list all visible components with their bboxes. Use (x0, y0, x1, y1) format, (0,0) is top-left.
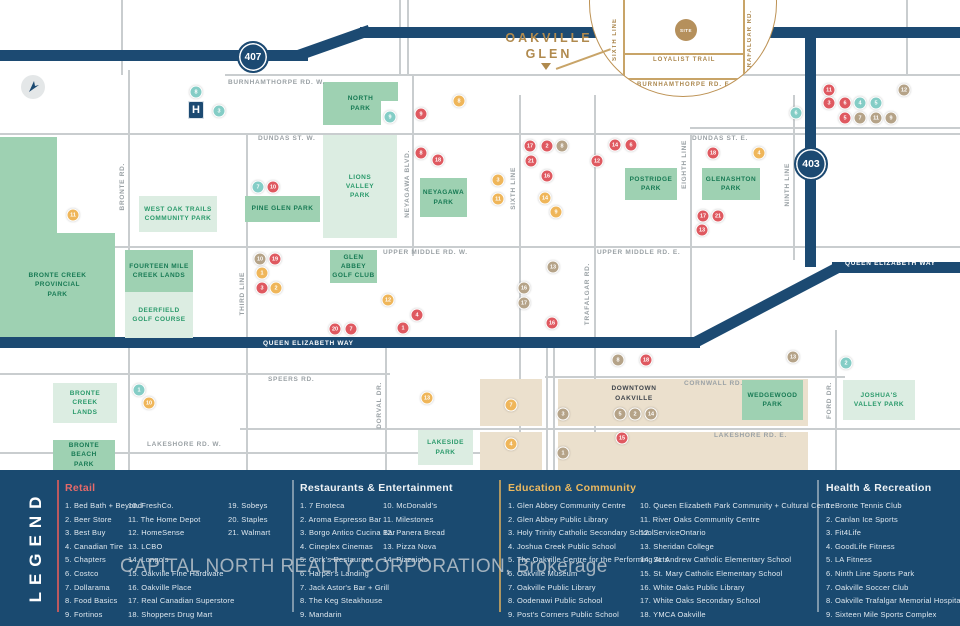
poi-marker-t-8: 8 (556, 140, 569, 153)
map-canvas: BRONTE CREEK PROVINCIAL PARKWEST OAK TRA… (0, 0, 960, 470)
brokerage-watermark: CAPITAL NORTH REALTY CORPORATION, Broker… (120, 556, 608, 578)
legend-item-retail: 11. The Home Depot (128, 515, 201, 524)
poi-marker-r-12: 12 (591, 155, 604, 168)
poi-marker-r-16: 16 (541, 170, 554, 183)
poi-marker-r-17: 17 (697, 210, 710, 223)
legend-item-education: 8. Oodenawi Public School (508, 596, 603, 605)
road-vertical (246, 133, 248, 470)
park-west-oak-trails: WEST OAK TRAILS COMMUNITY PARK (139, 196, 217, 232)
callout-trafalgar-label: TRAFALGAR RD. (747, 10, 753, 72)
poi-marker-t-11: 11 (870, 112, 883, 125)
legend-divider (57, 480, 59, 612)
north-arrow-icon (21, 75, 45, 99)
park-glenashton: GLENASHTON PARK (702, 168, 760, 200)
poi-marker-o-2: 2 (270, 282, 283, 295)
site-marker: SITE (675, 19, 697, 41)
poi-marker-r-8: 8 (415, 147, 428, 160)
legend-section-title-restaurants: Restaurants & Entertainment (300, 482, 453, 494)
callout-burnhamthorpe-road (590, 78, 777, 80)
legend-item-health: 2. Canlan Ice Sports (826, 515, 898, 524)
poi-marker-r-20: 20 (329, 323, 342, 336)
park-glen-abbey: GLEN ABBEY GOLF CLUB (330, 250, 377, 283)
park-pine-glen-park: PINE GLEN PARK (245, 196, 320, 222)
road-vertical (793, 95, 795, 260)
poi-marker-t-17: 17 (518, 297, 531, 310)
poi-marker-c-8: 8 (190, 86, 203, 99)
oakville-glen-map-page: BRONTE CREEK PROVINCIAL PARKWEST OAK TRA… (0, 0, 960, 626)
poi-marker-c-9: 9 (384, 111, 397, 124)
legend-item-restaurants: 10. McDonald's (383, 501, 437, 510)
road-label: QUEEN ELIZABETH WAY (263, 340, 354, 347)
road-vertical (546, 340, 548, 470)
legend-item-restaurants: 4. Cineplex Cinemas (300, 542, 373, 551)
highway-407-shield: 407 (237, 41, 269, 73)
park-joshua-s: JOSHUA'S VALLEY PARK (843, 380, 915, 420)
legend-item-retail: 6. Costco (65, 569, 98, 578)
poi-marker-r-10: 10 (267, 181, 280, 194)
project-title: OAKVILLE GLEN (505, 31, 593, 62)
legend-item-restaurants: 12. Panera Bread (383, 528, 445, 537)
road-label: SPEERS RD. (268, 376, 314, 383)
legend-item-education: 14. St. Andrew Catholic Elementary Schoo… (640, 555, 791, 564)
callout-sixth-line-label: SIXTH LINE (612, 18, 618, 61)
road-vertical (690, 133, 692, 337)
legend-item-retail: 20. Staples (228, 515, 268, 524)
legend-item-retail: 16. Oakville Place (128, 583, 192, 592)
park-lakeside: LAKESIDE PARK (418, 430, 473, 465)
legend-item-health: 3. Fit4Life (826, 528, 861, 537)
poi-marker-r-13: 13 (696, 224, 709, 237)
poi-marker-r-15: 15 (616, 432, 629, 445)
legend-section-title-retail: Retail (65, 482, 95, 494)
legend-item-health: 4. GoodLife Fitness (826, 542, 895, 551)
legend-divider (292, 480, 294, 612)
legend-item-education: 3. Holy Trinity Catholic Secondary Schoo… (508, 528, 654, 537)
poi-marker-c-6: 6 (790, 107, 803, 120)
poi-marker-t-9: 9 (885, 112, 898, 125)
road-label: EIGHTH LINE (681, 140, 688, 189)
legend-item-retail: 3. Best Buy (65, 528, 106, 537)
road-label: THIRD LINE (239, 272, 246, 315)
legend-item-retail: 4. Canadian Tire (65, 542, 123, 551)
poi-marker-o-14: 14 (539, 192, 552, 205)
legend-item-education: 9. Post's Corners Public School (508, 610, 619, 619)
legend-section-title-education: Education & Community (508, 482, 636, 494)
road-label: BRONTE RD. (119, 163, 126, 210)
callout-loyalist-trail-road (623, 53, 745, 55)
legend-item-retail: 10. FreshCo. (128, 501, 174, 510)
poi-marker-r-2: 2 (541, 140, 554, 153)
road-vertical (121, 0, 123, 75)
callout-burnhamthorpe-label: BURNHAMTHORPE RD. E. (637, 82, 732, 88)
road-label: UPPER MIDDLE RD. E. (597, 249, 680, 256)
road-vertical (412, 74, 414, 256)
legend-item-education: 7. Oakville Public Library (508, 583, 596, 592)
legend-item-education: 18. YMCA Oakville (640, 610, 706, 619)
legend-item-retail: 12. HomeSense (128, 528, 184, 537)
legend-item-education: 2. Glen Abbey Public Library (508, 515, 608, 524)
poi-marker-o-9: 9 (550, 206, 563, 219)
poi-marker-t-8: 8 (612, 354, 625, 367)
park-bronte-creek: BRONTE CREEK PROVINCIAL PARK (0, 233, 115, 337)
poi-marker-t-14: 14 (645, 408, 658, 421)
park-wedgewood: WEDGEWOOD PARK (742, 380, 803, 420)
legend-divider (817, 480, 819, 612)
legend-item-health: 1. Bronte Tennis Club (826, 501, 902, 510)
legend-title: LEGEND (26, 476, 46, 616)
road-vertical (553, 340, 555, 470)
poi-marker-c-5: 5 (870, 97, 883, 110)
site-label: SITE (680, 28, 692, 33)
poi-marker-o-8: 8 (453, 95, 466, 108)
legend-item-education: 1. Glen Abbey Community Centre (508, 501, 626, 510)
poi-marker-c-4: 4 (854, 97, 867, 110)
poi-marker-r-14: 14 (609, 139, 622, 152)
legend-item-health: 8. Oakville Trafalgar Memorial Hospital (826, 596, 960, 605)
legend-item-retail: 8. Food Basics (65, 596, 117, 605)
poi-marker-r-18: 18 (640, 354, 653, 367)
poi-marker-c-1: 1 (133, 384, 146, 397)
legend-item-education: 4. Joshua Creek Public School (508, 542, 616, 551)
north-arrow-glyph (26, 80, 40, 94)
poi-marker-o-4: 4 (505, 438, 518, 451)
poi-marker-c-2: 2 (840, 357, 853, 370)
poi-marker-o-13: 13 (421, 392, 434, 405)
poi-marker-t-16: 16 (518, 282, 531, 295)
poi-marker-o-1: 1 (256, 267, 269, 280)
poi-marker-c-7: 7 (252, 181, 265, 194)
park-area (0, 137, 57, 233)
poi-marker-t-13: 13 (787, 351, 800, 364)
road-label: NINTH LINE (784, 163, 791, 206)
park-bronte: BRONTE CREEK LANDS (53, 383, 117, 423)
legend-item-health: 7. Oakville Soccer Club (826, 583, 909, 592)
park-neyagawa: NEYAGAWA PARK (420, 178, 467, 217)
road-label: UPPER MIDDLE RD. W. (383, 249, 468, 256)
legend-section-title-health: Health & Recreation (826, 482, 931, 494)
legend-item-restaurants: 8. The Keg Steakhouse (300, 596, 382, 605)
road-label: LAKESHORE RD. E. (714, 432, 787, 439)
legend-item-health: 6. Ninth Line Sports Park (826, 569, 914, 578)
road-horizontal (0, 373, 390, 375)
poi-marker-r-1: 1 (397, 322, 410, 335)
road-label: DUNDAS ST. E. (692, 135, 748, 142)
hospital-icon: H (188, 101, 204, 119)
legend-item-retail: 9. Fortinos (65, 610, 103, 619)
poi-marker-o-4: 4 (753, 147, 766, 160)
road-label: NEYAGAWA BLVD. (404, 150, 411, 218)
poi-marker-r-3: 3 (256, 282, 269, 295)
hospital-letter: H (192, 104, 200, 116)
legend-item-restaurants: 13. Pizza Nova (383, 542, 436, 551)
poi-marker-r-6: 6 (839, 97, 852, 110)
callout-sixth-line-road (623, 0, 625, 78)
road-label: LAKESHORE RD. W. (147, 441, 221, 448)
legend-item-retail: 17. Real Canadian Superstore (128, 596, 235, 605)
road-horizontal (0, 246, 960, 248)
road-label: DORVAL DR. (376, 382, 383, 429)
legend-item-education: 12. ServiceOntario (640, 528, 706, 537)
legend-item-restaurants: 11. Milestones (383, 515, 434, 524)
poi-marker-r-11: 11 (823, 84, 836, 97)
poi-marker-o-10: 10 (143, 397, 156, 410)
downtown-oakville-label: DOWNTOWN OAKVILLE (596, 384, 672, 404)
poi-marker-r-21: 21 (525, 155, 538, 168)
legend-item-retail: 7. Dollarama (65, 583, 110, 592)
road-label: TRAFALGAR RD. (584, 263, 591, 325)
highway-403-shield: 403 (794, 147, 828, 181)
poi-marker-r-3: 3 (823, 97, 836, 110)
title-pointer-icon (541, 63, 551, 70)
legend-item-retail: 5. Chapters (65, 555, 106, 564)
park-fourteen-mile: FOURTEEN MILE CREEK LANDS (125, 250, 193, 292)
legend-item-education: 17. White Oaks Secondary School (640, 596, 760, 605)
legend-item-retail: 2. Beer Store (65, 515, 112, 524)
poi-marker-t-1: 1 (557, 447, 570, 460)
road-horizontal (240, 428, 960, 430)
poi-marker-r-21: 21 (712, 210, 725, 223)
callout-trafalgar-road (743, 0, 745, 78)
highway-qew-segment (692, 262, 841, 347)
legend-item-restaurants: 2. Aroma Espresso Bar (300, 515, 381, 524)
poi-marker-o-11: 11 (492, 193, 505, 206)
poi-marker-r-16: 16 (546, 317, 559, 330)
road-label: QUEEN ELIZABETH WAY (845, 260, 936, 267)
highway-403-number: 403 (802, 158, 820, 170)
poi-marker-o-3: 3 (492, 174, 505, 187)
road-horizontal (690, 127, 960, 129)
highway-407-number: 407 (245, 52, 262, 63)
site-callout-bubble: SITE LOYALIST TRAIL SIXTH LINE TRAFALGAR… (589, 0, 777, 97)
road-horizontal (225, 74, 960, 76)
road-label: SIXTH LINE (510, 167, 517, 210)
road-label: FORD DR. (826, 382, 833, 419)
poi-marker-r-17: 17 (524, 140, 537, 153)
park-lions: LIONS VALLEY PARK (323, 135, 397, 238)
legend-item-retail: 21. Walmart (228, 528, 270, 537)
poi-marker-r-19: 19 (269, 253, 282, 266)
legend-divider (499, 480, 501, 612)
poi-marker-o-12: 12 (382, 294, 395, 307)
poi-marker-r-18: 18 (432, 154, 445, 167)
legend-item-retail: 18. Shoppers Drug Mart (128, 610, 212, 619)
poi-marker-r-6: 6 (625, 139, 638, 152)
park-deerfield: DEERFIELD GOLF COURSE (125, 292, 193, 338)
poi-marker-c-3: 3 (213, 105, 226, 118)
poi-marker-t-10: 10 (254, 253, 267, 266)
legend-item-education: 13. Sheridan College (640, 542, 714, 551)
road-label: BURNHAMTHORPE RD. W. (228, 79, 325, 86)
road-vertical (385, 340, 387, 470)
road-horizontal (545, 376, 845, 378)
legend-item-retail: 19. Sobeys (228, 501, 268, 510)
road-vertical (835, 330, 837, 470)
poi-marker-o-11: 11 (67, 209, 80, 222)
legend-item-education: 11. River Oaks Community Centre (640, 515, 760, 524)
poi-marker-r-5: 5 (839, 112, 852, 125)
poi-marker-t-12: 12 (898, 84, 911, 97)
legend-item-education: 16. White Oaks Public Library (640, 583, 745, 592)
legend-item-restaurants: 9. Mandarin (300, 610, 342, 619)
loyalist-trail-label: LOYALIST TRAIL (653, 57, 715, 63)
poi-marker-r-9: 9 (415, 108, 428, 121)
poi-marker-r-18: 18 (707, 147, 720, 160)
legend-item-education: 10. Queen Elizabeth Park Community + Cul… (640, 501, 835, 510)
poi-marker-r-7: 7 (345, 323, 358, 336)
legend-item-health: 5. LA Fitness (826, 555, 872, 564)
poi-marker-t-13: 13 (547, 261, 560, 274)
poi-marker-t-3: 3 (557, 408, 570, 421)
legend-item-restaurants: 3. Borgo Antico Cucina Bar (300, 528, 395, 537)
legend-item-health: 9. Sixteen Mile Sports Complex (826, 610, 937, 619)
poi-marker-t-5: 5 (614, 408, 627, 421)
poi-marker-t-7: 7 (854, 112, 867, 125)
legend-item-education: 15. St. Mary Catholic Elementary School (640, 569, 782, 578)
road-horizontal (0, 133, 960, 135)
road-label: DUNDAS ST. W. (258, 135, 316, 142)
park-bronte: BRONTE BEACH PARK (53, 440, 115, 470)
park-postridge: POSTRIDGE PARK (625, 168, 677, 200)
road-label: CORNWALL RD. (684, 380, 743, 387)
legend-item-restaurants: 1. 7 Enoteca (300, 501, 345, 510)
legend-item-restaurants: 7. Jack Astor's Bar + Grill (300, 583, 389, 592)
poi-marker-o-7: 7 (505, 399, 518, 412)
legend-item-retail: 13. LCBO (128, 542, 163, 551)
poi-marker-r-4: 4 (411, 309, 424, 322)
poi-marker-t-2: 2 (629, 408, 642, 421)
